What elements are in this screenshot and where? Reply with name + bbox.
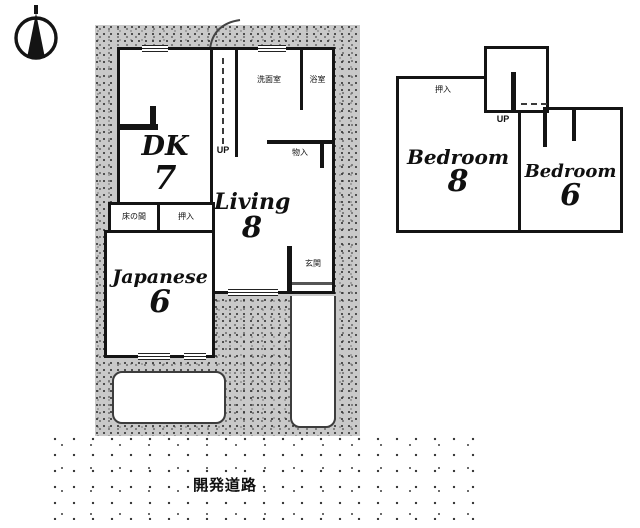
- storage-wall: [267, 140, 335, 144]
- closet-label-2f: 押入: [428, 84, 458, 95]
- floor-plan-page: DK 7 Living 8 Japanese 6 洗面室 浴室 物入 床の間 押…: [0, 0, 640, 528]
- stair-treads-1f: [222, 58, 224, 144]
- bedroom6-size: 6: [521, 181, 620, 212]
- parking-space: [112, 371, 226, 424]
- closet-wall-2f: [543, 107, 547, 147]
- bedroom8-size: 8: [398, 167, 518, 198]
- closet-label-1f: 押入: [161, 211, 211, 222]
- window: [184, 353, 206, 360]
- entrance-wall: [287, 246, 292, 292]
- road-area: [52, 436, 480, 520]
- window: [142, 45, 168, 52]
- living-size: 8: [214, 213, 290, 243]
- entrance-label: 玄関: [294, 258, 332, 269]
- window: [258, 45, 286, 52]
- washroom-label: 洗面室: [239, 74, 299, 85]
- dk-size: 7: [130, 161, 200, 195]
- stairs-up-label-2f: UP: [488, 114, 518, 124]
- dk-name: DK: [130, 133, 200, 161]
- storage-label: 物入: [282, 147, 318, 158]
- closet-wall-2f: [572, 107, 576, 141]
- bath-label: 浴室: [302, 74, 333, 85]
- storage-wall: [320, 144, 324, 168]
- stairwell-1f: [210, 47, 238, 157]
- room-label-living: Living 8: [214, 191, 290, 243]
- room-label-bedroom-6: Bedroom 6: [521, 163, 620, 212]
- room-label-bedroom-8: Bedroom 8: [398, 147, 518, 198]
- entrance-porch: [290, 296, 336, 428]
- room-label-dk: DK 7: [130, 133, 200, 194]
- tokonoma-label: 床の間: [111, 211, 157, 222]
- stair-treads-2f: [521, 103, 547, 105]
- stairs-up-label-1f: UP: [208, 145, 238, 155]
- room-label-japanese: Japanese 6: [110, 268, 210, 319]
- entrance-step-line: [292, 282, 332, 285]
- road-label: 開発道路: [193, 474, 257, 495]
- north-arrow-icon: [10, 2, 62, 64]
- stair-wall-2f: [511, 72, 516, 113]
- window: [228, 289, 278, 296]
- japanese-size: 6: [110, 287, 210, 319]
- window: [138, 353, 170, 360]
- kitchen-counter-wall: [150, 106, 156, 130]
